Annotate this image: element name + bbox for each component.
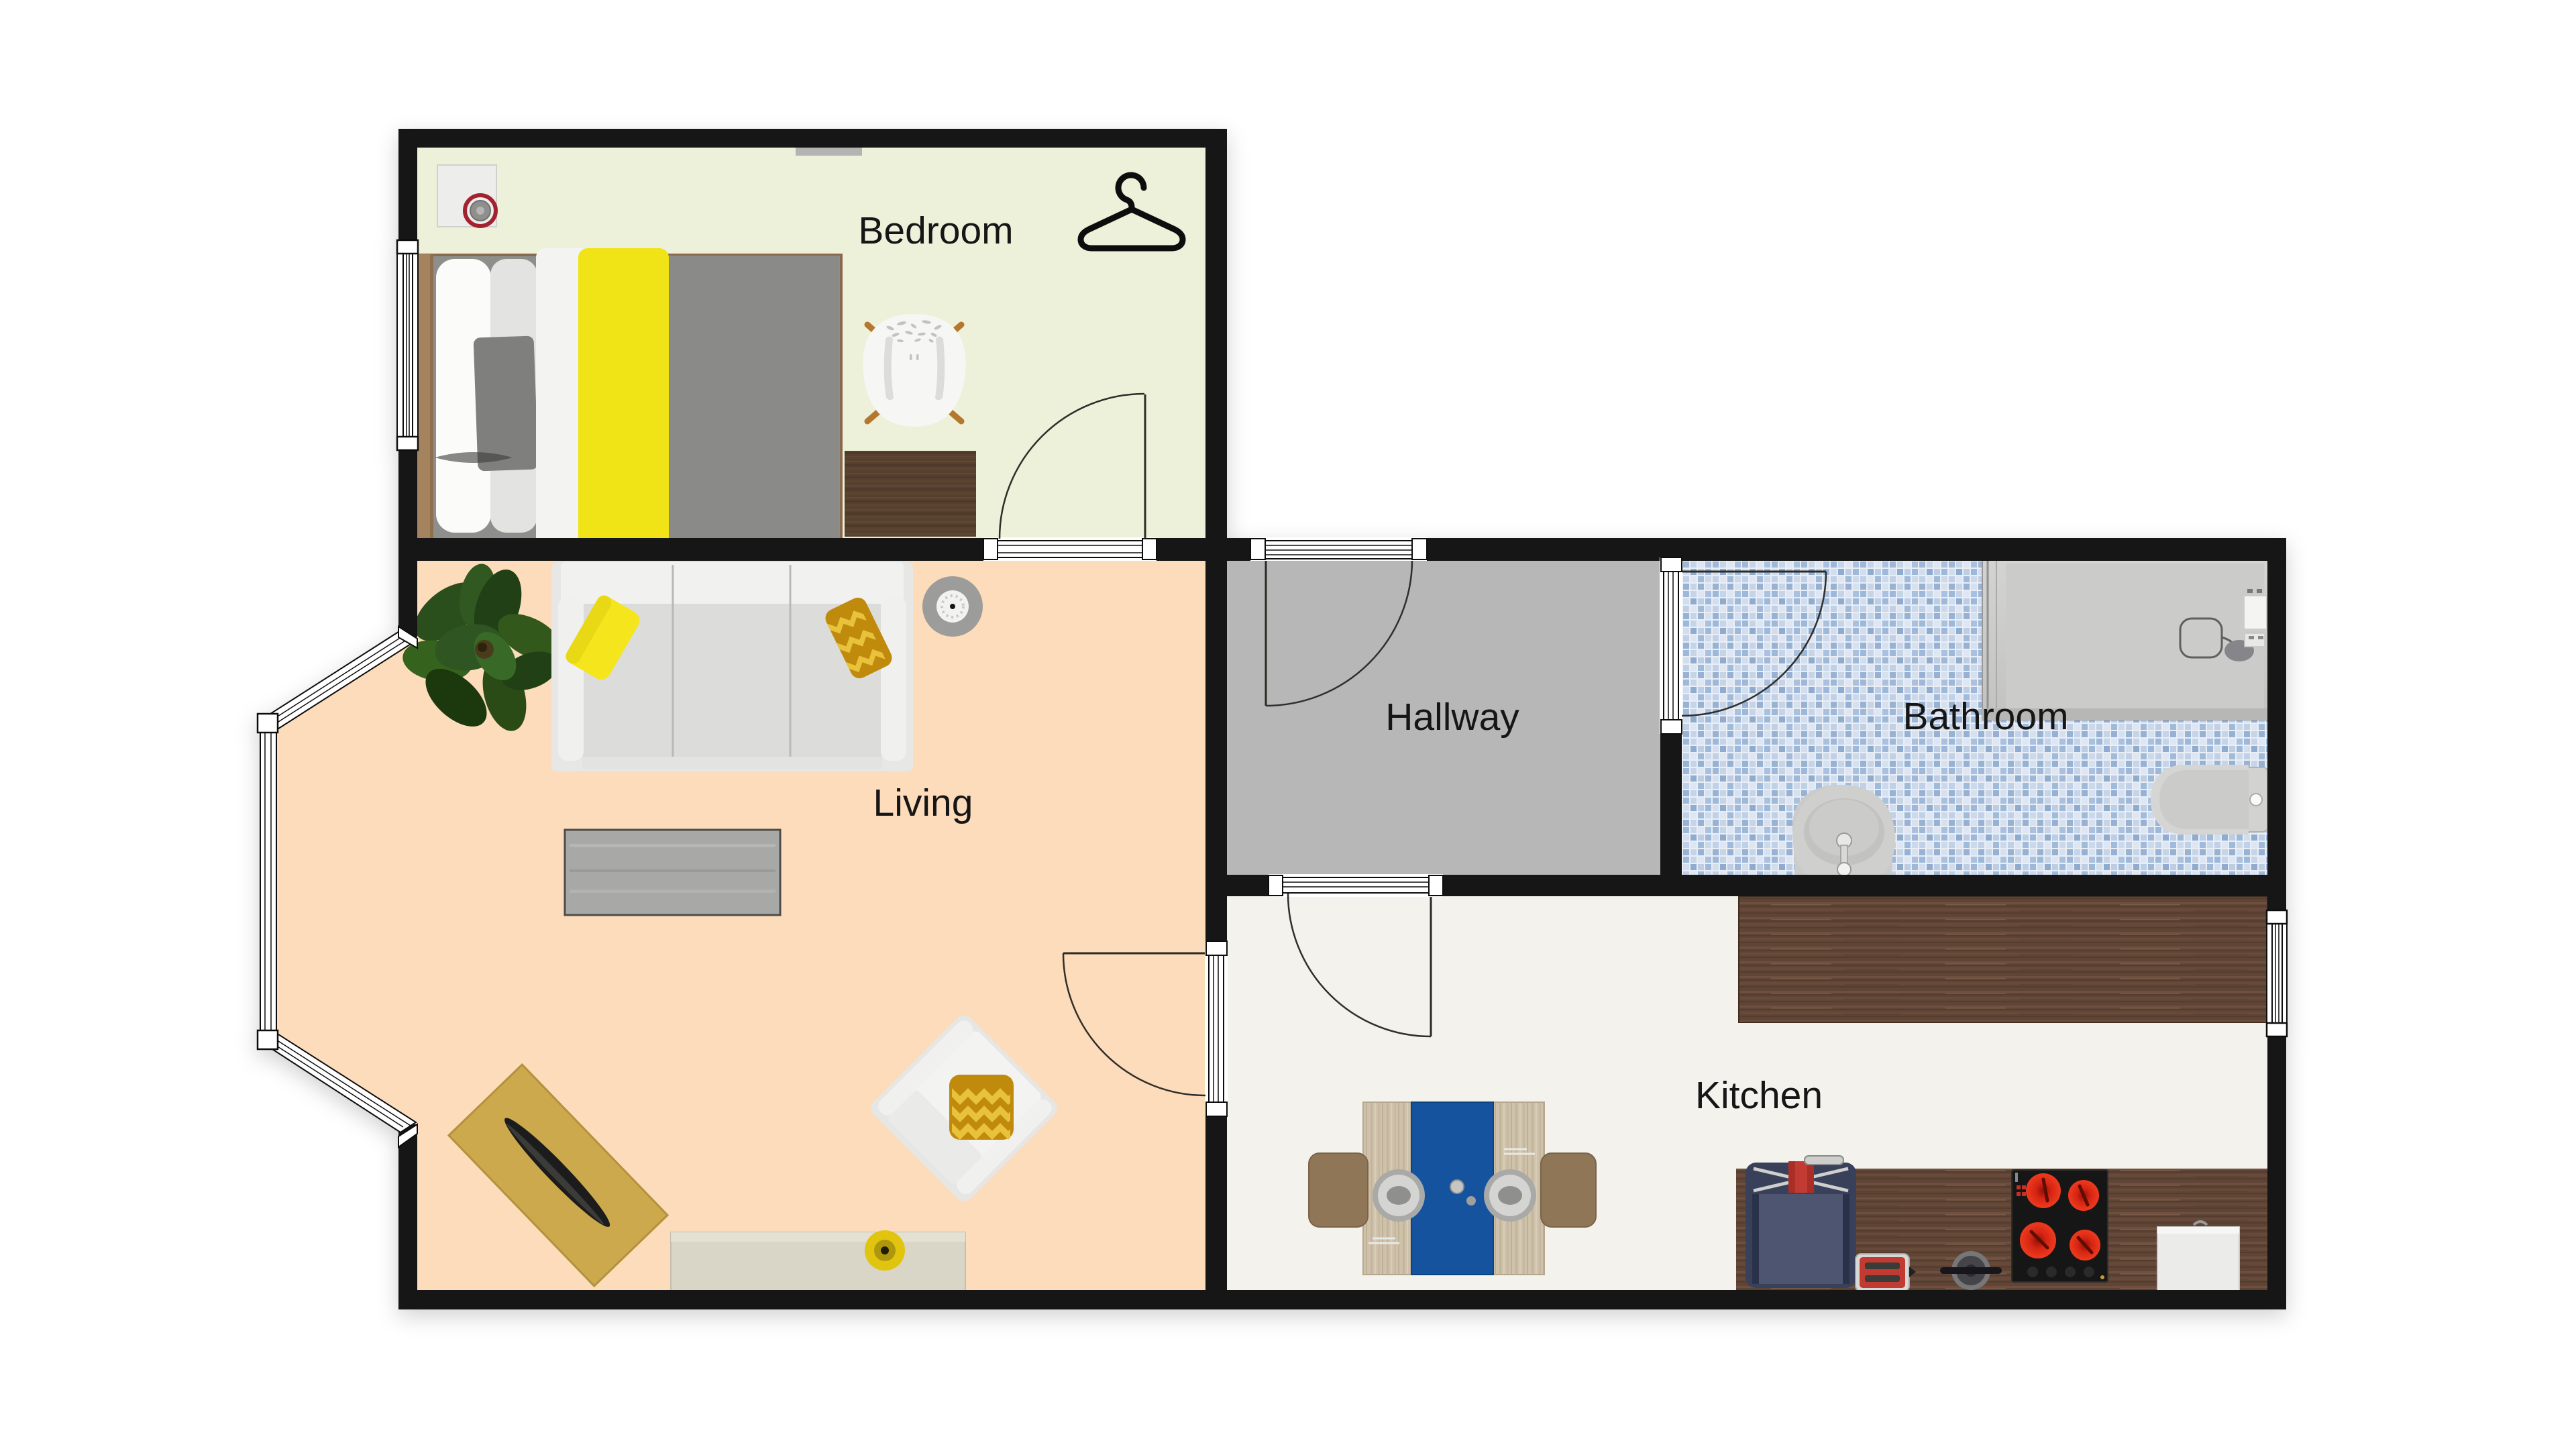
svg-text:Hallway: Hallway (1385, 696, 1519, 739)
svg-text:Kitchen: Kitchen (1695, 1074, 1823, 1117)
svg-text:Bedroom: Bedroom (858, 209, 1013, 252)
svg-text:Living: Living (873, 782, 973, 824)
svg-text:Bathroom: Bathroom (1902, 695, 2068, 738)
